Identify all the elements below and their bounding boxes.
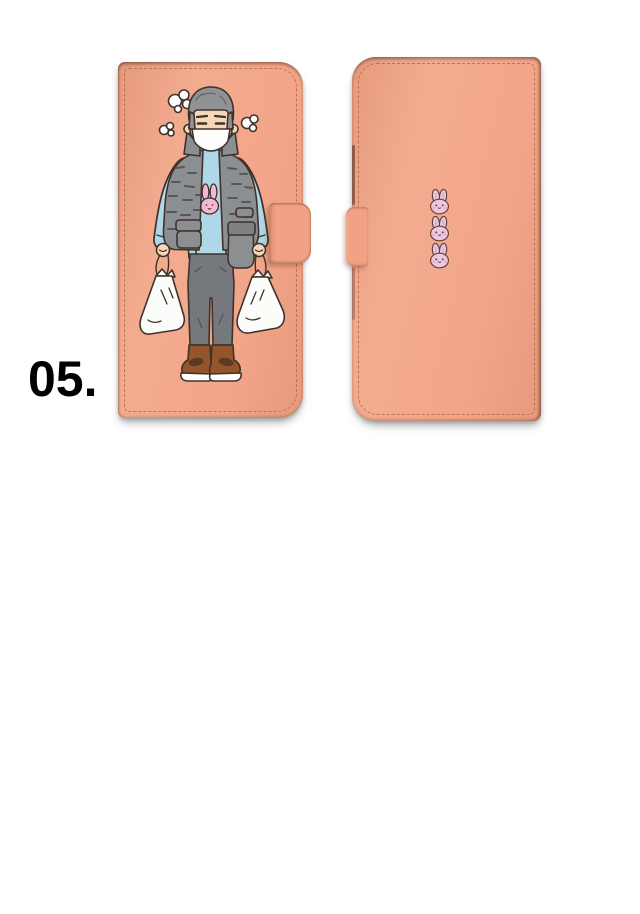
- cover-edge-seam: [352, 145, 355, 205]
- bunny-icon: [428, 242, 451, 269]
- bunny-stack: [428, 188, 451, 269]
- vest-pocket: [177, 231, 201, 248]
- item-number-label: 05.: [28, 354, 98, 404]
- steam-puff-icon: [160, 123, 175, 137]
- bunny-icon: [428, 188, 451, 215]
- right-hand: [253, 244, 266, 257]
- phone-case-front-cover: [118, 62, 303, 418]
- vest-pocket-flap: [176, 220, 201, 231]
- phone-case-back-cover: [352, 57, 541, 421]
- vest-pocket-flap: [236, 208, 253, 217]
- plastic-bag-icon: [140, 255, 184, 334]
- shoes: [181, 345, 241, 381]
- masked-man-illustration: [128, 84, 293, 394]
- side-pouch: [228, 222, 255, 268]
- clasp-strap-side: [346, 207, 368, 266]
- bunny-icon: [428, 215, 451, 242]
- pants: [188, 254, 234, 345]
- product-image: 05.: [0, 0, 640, 914]
- cover-edge-seam: [352, 268, 355, 320]
- clasp-strap: [270, 203, 311, 263]
- steam-puff-icon: [242, 115, 259, 132]
